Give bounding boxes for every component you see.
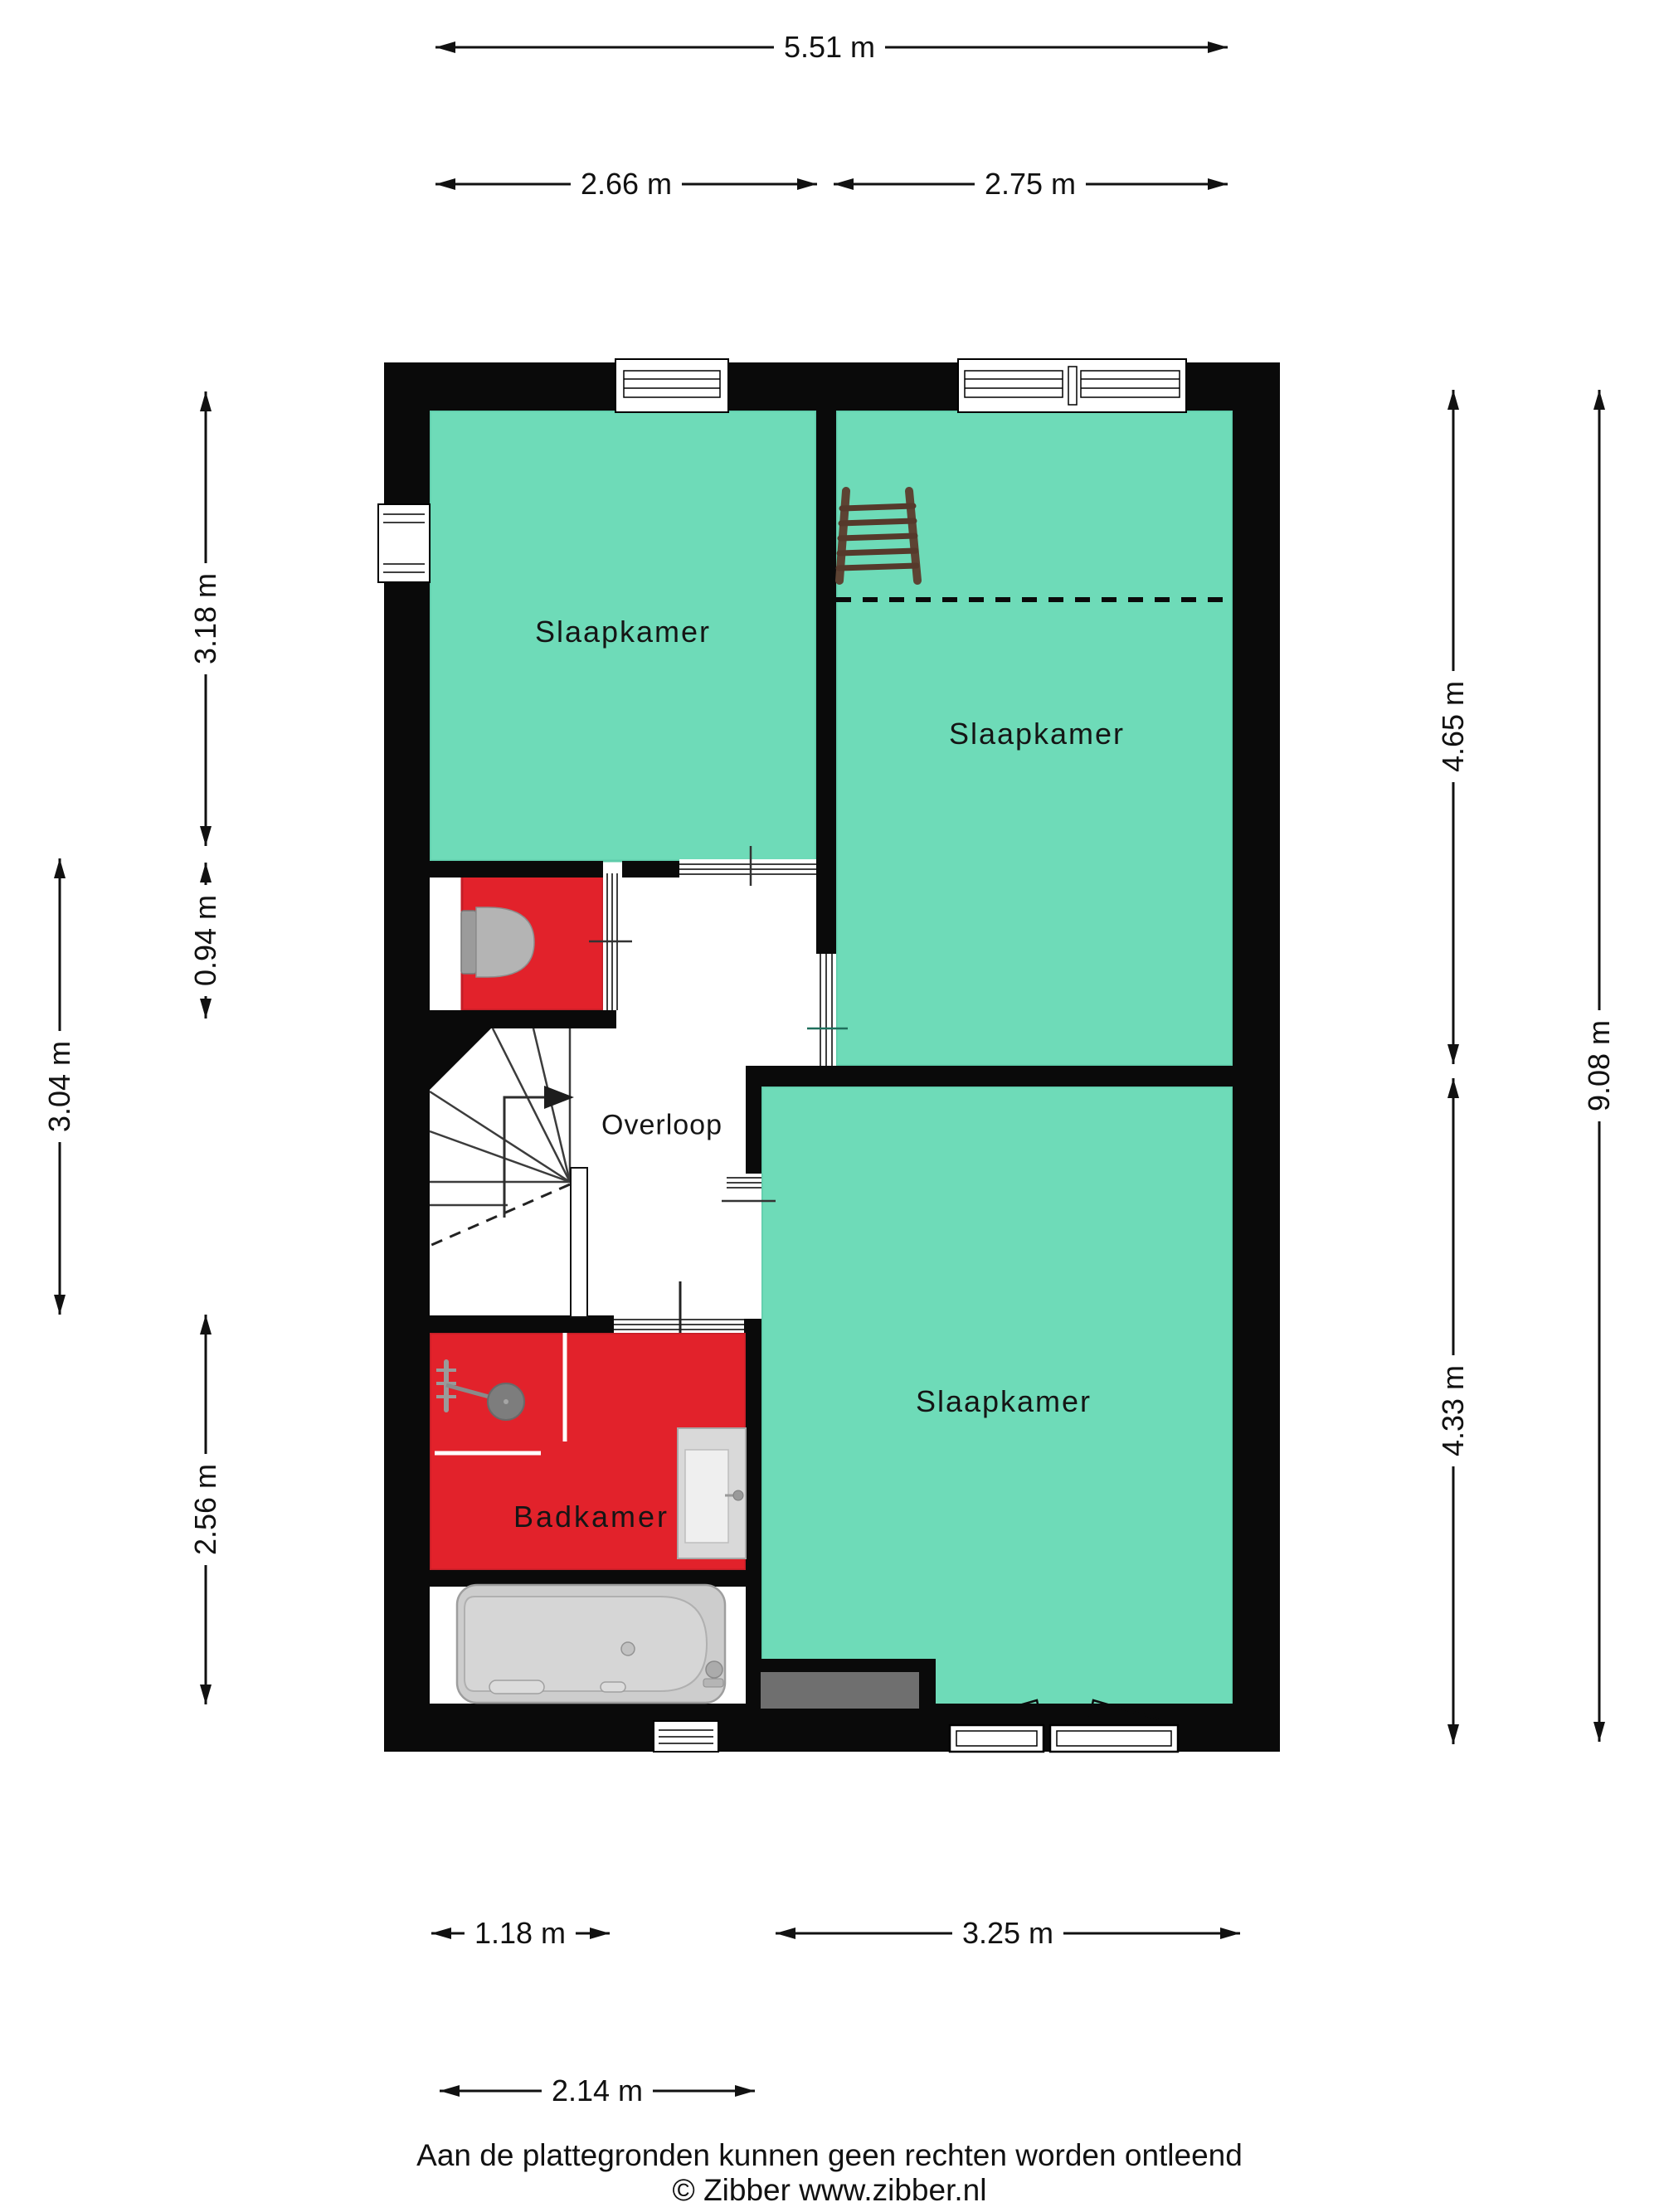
dimension-label-bottom-118: 1.18 m [465,1914,576,1952]
stair-balustrade [571,1168,587,1317]
room-label-overloop: Overloop [601,1110,722,1142]
floorplan-drawing [0,0,1659,2212]
window-icon-bathroom [654,1721,718,1752]
dimension-label-width-left: 2.66 m [571,165,682,203]
dimension-label-left-304: 3.04 m [41,1031,79,1142]
dimension-label-left-094: 0.94 m [187,885,225,996]
dimension-label-left-256: 2.56 m [187,1454,225,1565]
window-icon-left-wall [378,504,430,582]
dimension-label-bottom-214: 2.14 m [542,2072,653,2110]
room-label-slaapkamer-tl: Slaapkamer [535,615,711,649]
dimension-label-right-465: 4.65 m [1434,671,1472,782]
void-area [747,1659,936,1710]
vanity-icon [678,1428,746,1558]
window-icon-top-left [615,359,728,412]
room-label-badkamer: Badkamer [513,1500,669,1534]
dimension-label-bottom-325: 3.25 m [952,1914,1063,1952]
footer-disclaimer: Aan de plattegronden kunnen geen rechten… [0,2138,1659,2173]
footer-copyright: © Zibber www.zibber.nl [0,2173,1659,2208]
room-label-slaapkamer-tr: Slaapkamer [949,717,1125,751]
window-icon-top-right [958,359,1186,412]
bathtub-icon [457,1585,725,1703]
room-label-slaapkamer-br: Slaapkamer [916,1384,1092,1419]
floorplan-page: Slaapkamer Slaapkamer Slaapkamer Overloo… [0,0,1659,2212]
dimension-label-width-right: 2.75 m [975,165,1086,203]
dimension-label-width-total: 5.51 m [774,28,885,66]
dimension-label-right-433: 4.33 m [1434,1355,1472,1466]
toilet-icon [461,907,534,977]
dimension-label-right-908: 9.08 m [1580,1010,1618,1121]
dimension-label-left-318: 3.18 m [187,563,225,674]
